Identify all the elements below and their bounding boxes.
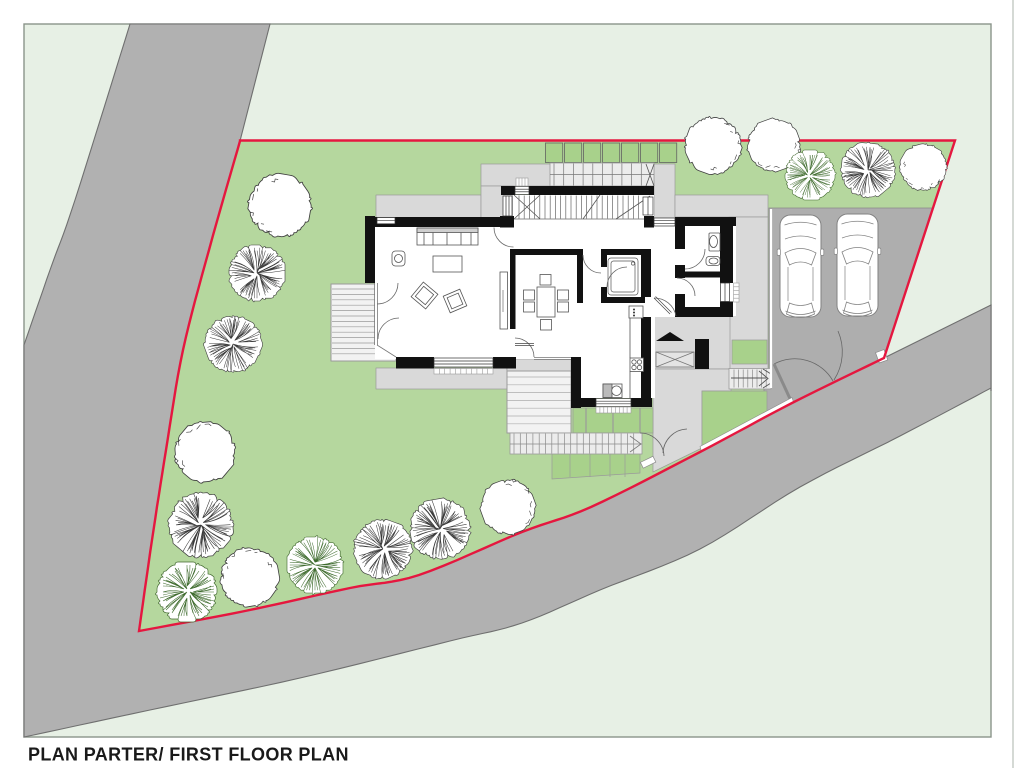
svg-text:PLAN PARTER/ FIRST FLOOR PLAN: PLAN PARTER/ FIRST FLOOR PLAN <box>28 745 349 765</box>
